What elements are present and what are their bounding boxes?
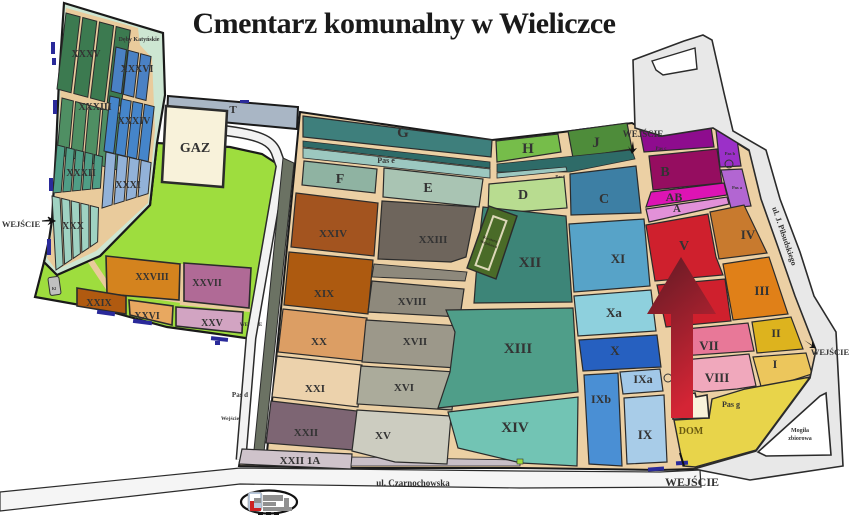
- svg-text:XXVII: XXVII: [192, 278, 222, 289]
- svg-text:XV: XV: [375, 430, 391, 442]
- svg-text:XXI: XXI: [305, 383, 325, 395]
- svg-text:A: A: [673, 203, 681, 215]
- svg-text:Pas e: Pas e: [377, 156, 395, 165]
- svg-text:XI: XI: [611, 251, 625, 266]
- svg-text:Pas a: Pas a: [732, 185, 743, 190]
- svg-text:Xa: Xa: [606, 305, 622, 320]
- svg-text:Pas g: Pas g: [722, 400, 740, 409]
- svg-text:Dęby Katyńskie: Dęby Katyńskie: [119, 37, 160, 43]
- svg-text:XX: XX: [311, 336, 327, 348]
- svg-text:IXb: IXb: [591, 392, 611, 406]
- svg-text:XXXI: XXXI: [115, 180, 141, 191]
- svg-text:XXXIII: XXXIII: [78, 102, 111, 113]
- svg-text:B: B: [660, 165, 669, 180]
- svg-text:G: G: [397, 125, 409, 141]
- svg-text:XXV: XXV: [201, 318, 223, 329]
- svg-text:H: H: [522, 141, 534, 157]
- svg-text:zbiorowa: zbiorowa: [788, 436, 812, 442]
- svg-text:D: D: [518, 188, 528, 203]
- svg-text:XIV: XIV: [501, 420, 529, 436]
- svg-text:XXVIII: XXVIII: [135, 272, 168, 283]
- svg-text:XXXIV: XXXIV: [118, 116, 152, 127]
- svg-text:WEJŚCIE: WEJŚCIE: [811, 347, 850, 357]
- svg-text:XXII: XXII: [294, 427, 318, 439]
- svg-text:Pas c: Pas c: [656, 147, 668, 152]
- svg-text:AB: AB: [666, 190, 683, 204]
- svg-text:III: III: [754, 283, 769, 298]
- svg-text:I: I: [773, 357, 778, 371]
- svg-text:Pas b: Pas b: [725, 151, 736, 156]
- svg-text:WEJŚCIE: WEJŚCIE: [623, 129, 664, 139]
- svg-text:E: E: [423, 181, 432, 196]
- svg-text:J: J: [592, 135, 600, 151]
- svg-text:Cmentarz komunalny w Wieliczce: Cmentarz komunalny w Wieliczce: [192, 7, 615, 40]
- svg-text:Mogiła: Mogiła: [791, 428, 809, 434]
- svg-text:V: V: [679, 239, 689, 254]
- svg-text:XVI: XVI: [394, 382, 414, 394]
- svg-text:XIII: XIII: [504, 341, 533, 357]
- svg-text:XIX: XIX: [314, 288, 334, 300]
- svg-text:XXII 1A: XXII 1A: [280, 455, 321, 467]
- svg-text:XVII: XVII: [403, 336, 427, 348]
- svg-text:IXa: IXa: [633, 372, 652, 386]
- svg-text:XXXV: XXXV: [72, 49, 102, 60]
- svg-text:WEJŚCIE: WEJŚCIE: [2, 219, 41, 229]
- svg-text:XXXII: XXXII: [66, 168, 96, 179]
- svg-text:VII: VII: [699, 338, 719, 353]
- svg-text:X: X: [610, 343, 620, 358]
- svg-text:Wejście: Wejście: [221, 416, 240, 422]
- svg-text:XXIV: XXIV: [319, 228, 347, 240]
- svg-text:T: T: [229, 104, 237, 116]
- svg-text:XVIII: XVIII: [398, 296, 427, 308]
- svg-text:II: II: [771, 326, 781, 340]
- svg-text:XII: XII: [519, 255, 542, 271]
- svg-text:XXXVI: XXXVI: [121, 64, 154, 75]
- svg-text:WEJŚCIE: WEJŚCIE: [665, 475, 719, 489]
- svg-text:VIII: VIII: [705, 370, 730, 385]
- svg-text:IV: IV: [741, 227, 756, 242]
- svg-text:ul. Czarnochowska: ul. Czarnochowska: [376, 478, 450, 488]
- svg-text:F: F: [336, 172, 345, 187]
- svg-text:GAZ: GAZ: [180, 141, 210, 156]
- svg-text:DOM: DOM: [679, 426, 704, 437]
- svg-text:XXIII: XXIII: [419, 234, 448, 246]
- svg-text:IX: IX: [638, 427, 653, 442]
- svg-text:XXX: XXX: [62, 221, 84, 232]
- svg-text:XXIX: XXIX: [86, 298, 112, 309]
- svg-text:C: C: [599, 192, 609, 207]
- svg-text:Pas d: Pas d: [232, 391, 248, 399]
